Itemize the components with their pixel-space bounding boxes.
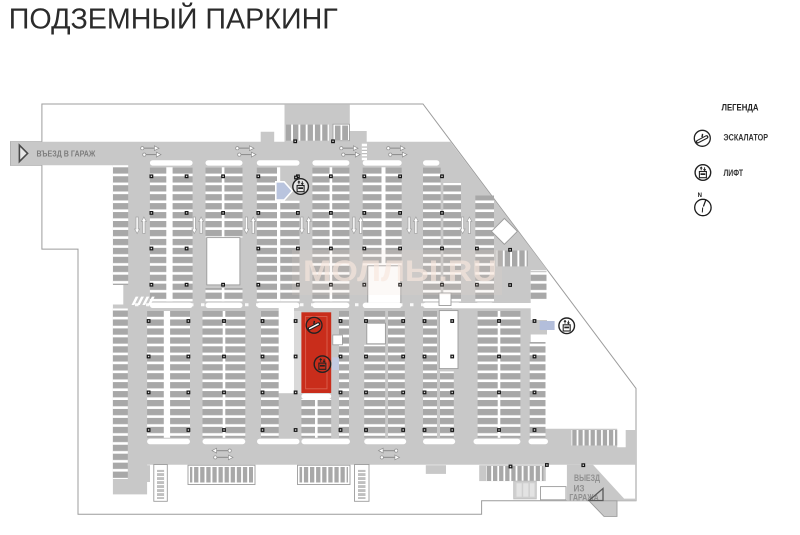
svg-text:ЛЕГЕНДА: ЛЕГЕНДА bbox=[722, 103, 759, 114]
svg-text:ПОДЗЕМНЫЙ ПАРКИНГ: ПОДЗЕМНЫЙ ПАРКИНГ bbox=[9, 1, 338, 35]
svg-text:ЭСКАЛАТОР: ЭСКАЛАТОР bbox=[724, 133, 769, 144]
svg-text:ЛИФТ: ЛИФТ bbox=[724, 168, 744, 179]
svg-text:ВЪЕЗД В ГАРАЖ: ВЪЕЗД В ГАРАЖ bbox=[37, 149, 97, 158]
svg-text:ВЫЕЗД: ВЫЕЗД bbox=[574, 473, 601, 483]
svg-text:N: N bbox=[698, 193, 702, 199]
svg-text:МОЛЛЫ.RU: МОЛЛЫ.RU bbox=[303, 255, 497, 288]
